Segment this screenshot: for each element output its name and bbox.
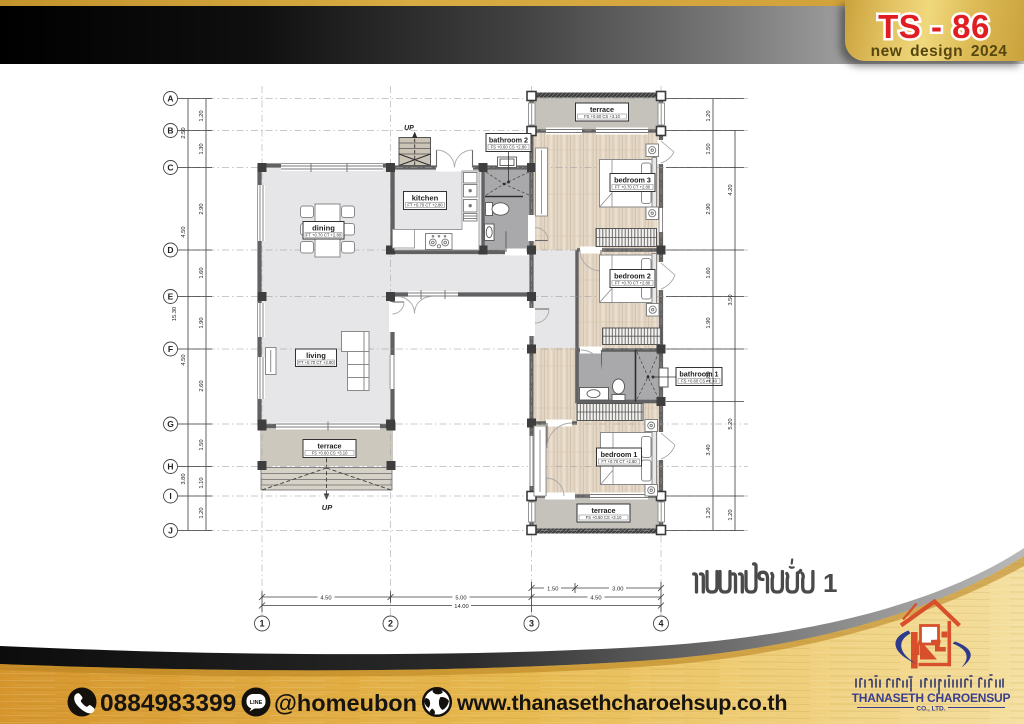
svg-text:2.90: 2.90 xyxy=(199,203,205,214)
svg-text:1.20: 1.20 xyxy=(706,507,712,518)
svg-text:4.50: 4.50 xyxy=(181,226,187,237)
svg-text:5.00: 5.00 xyxy=(455,595,466,601)
svg-text:1.10: 1.10 xyxy=(199,477,205,488)
svg-text:bedroom 2: bedroom 2 xyxy=(614,272,651,281)
svg-text:1.20: 1.20 xyxy=(706,110,712,121)
svg-text:3.40: 3.40 xyxy=(706,444,712,455)
svg-text:FS +0.60 CS +3.10: FS +0.60 CS +3.10 xyxy=(586,515,623,520)
svg-text:3.50: 3.50 xyxy=(728,294,734,305)
svg-text:CO., LTD.: CO., LTD. xyxy=(916,706,945,713)
svg-text:1: 1 xyxy=(823,568,837,598)
svg-text:14.00: 14.00 xyxy=(454,604,469,610)
svg-text:4.50: 4.50 xyxy=(181,354,187,365)
svg-text:2.90: 2.90 xyxy=(706,203,712,214)
svg-text:G: G xyxy=(167,419,174,429)
svg-text:2: 2 xyxy=(388,619,393,629)
svg-text:LINE: LINE xyxy=(250,700,263,706)
svg-text:3.00: 3.00 xyxy=(612,586,623,592)
svg-text:2.50: 2.50 xyxy=(181,127,187,138)
svg-text:bathroom 2: bathroom 2 xyxy=(489,136,528,145)
svg-text:FT +0.70 CT +2.80: FT +0.70 CT +2.80 xyxy=(615,185,651,190)
svg-text:3.80: 3.80 xyxy=(181,473,187,484)
svg-text:4.50: 4.50 xyxy=(320,595,331,601)
svg-text:A: A xyxy=(167,94,173,104)
svg-text:1.50: 1.50 xyxy=(199,439,205,450)
svg-text:FS +0.60 CS +2.40: FS +0.60 CS +2.40 xyxy=(681,379,718,384)
svg-text:dining: dining xyxy=(312,224,335,233)
svg-text:TS - 86: TS - 86 xyxy=(878,8,990,45)
svg-text:I: I xyxy=(169,491,171,501)
svg-text:F: F xyxy=(168,344,173,354)
svg-text:bedroom 1: bedroom 1 xyxy=(601,450,638,459)
svg-text:UP: UP xyxy=(322,503,333,512)
svg-text:@homeubon: @homeubon xyxy=(274,690,417,716)
svg-text:terrace: terrace xyxy=(592,506,616,515)
svg-text:D: D xyxy=(167,245,173,255)
svg-text:bedroom 3: bedroom 3 xyxy=(614,176,651,185)
svg-text:1.90: 1.90 xyxy=(706,317,712,328)
svg-text:1.50: 1.50 xyxy=(706,143,712,154)
svg-text:1.20: 1.20 xyxy=(199,507,205,518)
svg-text:kitchen: kitchen xyxy=(412,194,439,203)
svg-text:1.30: 1.30 xyxy=(199,143,205,154)
svg-text:1.50: 1.50 xyxy=(547,586,558,592)
svg-text:4: 4 xyxy=(658,619,663,629)
svg-text:terrace: terrace xyxy=(590,105,614,114)
svg-text:FT +0.70 CT +2.80: FT +0.70 CT +2.80 xyxy=(298,360,334,365)
svg-text:5.20: 5.20 xyxy=(728,418,734,429)
svg-text:1.20: 1.20 xyxy=(728,509,734,520)
svg-text:THANASETH CHAROENSUP: THANASETH CHAROENSUP xyxy=(852,691,1011,705)
svg-text:1.80: 1.80 xyxy=(706,371,712,382)
svg-text:J: J xyxy=(168,526,173,536)
svg-text:1.90: 1.90 xyxy=(199,317,205,328)
svg-text:1: 1 xyxy=(259,619,264,629)
svg-text:1.20: 1.20 xyxy=(199,110,205,121)
svg-text:H: H xyxy=(167,462,173,472)
svg-text:B: B xyxy=(167,126,173,136)
svg-text:1.60: 1.60 xyxy=(199,267,205,278)
svg-text:FT +0.70 CT +2.80: FT +0.70 CT +2.80 xyxy=(615,281,651,286)
svg-text:4.50: 4.50 xyxy=(590,595,601,601)
svg-text:0884983399: 0884983399 xyxy=(100,690,236,717)
svg-text:1.60: 1.60 xyxy=(706,267,712,278)
svg-text:living: living xyxy=(306,351,326,360)
svg-text:FT +0.70 CT +2.80: FT +0.70 CT +2.80 xyxy=(407,203,443,208)
svg-text:15.30: 15.30 xyxy=(172,307,178,322)
svg-text:www.thanasethcharoehsup.co.th: www.thanasethcharoehsup.co.th xyxy=(456,691,787,715)
svg-text:terrace: terrace xyxy=(318,442,342,451)
svg-text:FS +0.60 CS +2.80: FS +0.60 CS +2.80 xyxy=(491,145,528,150)
svg-text:new design 2024: new design 2024 xyxy=(871,43,1008,60)
svg-text:C: C xyxy=(167,163,173,173)
svg-text:FT +0.70 CT +2.80: FT +0.70 CT +2.80 xyxy=(306,233,342,238)
svg-text:3: 3 xyxy=(529,619,534,629)
svg-text:4.20: 4.20 xyxy=(728,184,734,195)
svg-text:E: E xyxy=(168,292,174,302)
svg-text:UP: UP xyxy=(404,125,414,132)
svg-text:2.60: 2.60 xyxy=(199,380,205,391)
svg-text:FT +0.70 CT +2.80: FT +0.70 CT +2.80 xyxy=(601,459,637,464)
svg-text:FS +0.60 CS +3.10: FS +0.60 CS +3.10 xyxy=(312,451,349,456)
svg-text:FS +0.60 CS +3.10: FS +0.60 CS +3.10 xyxy=(584,114,621,119)
